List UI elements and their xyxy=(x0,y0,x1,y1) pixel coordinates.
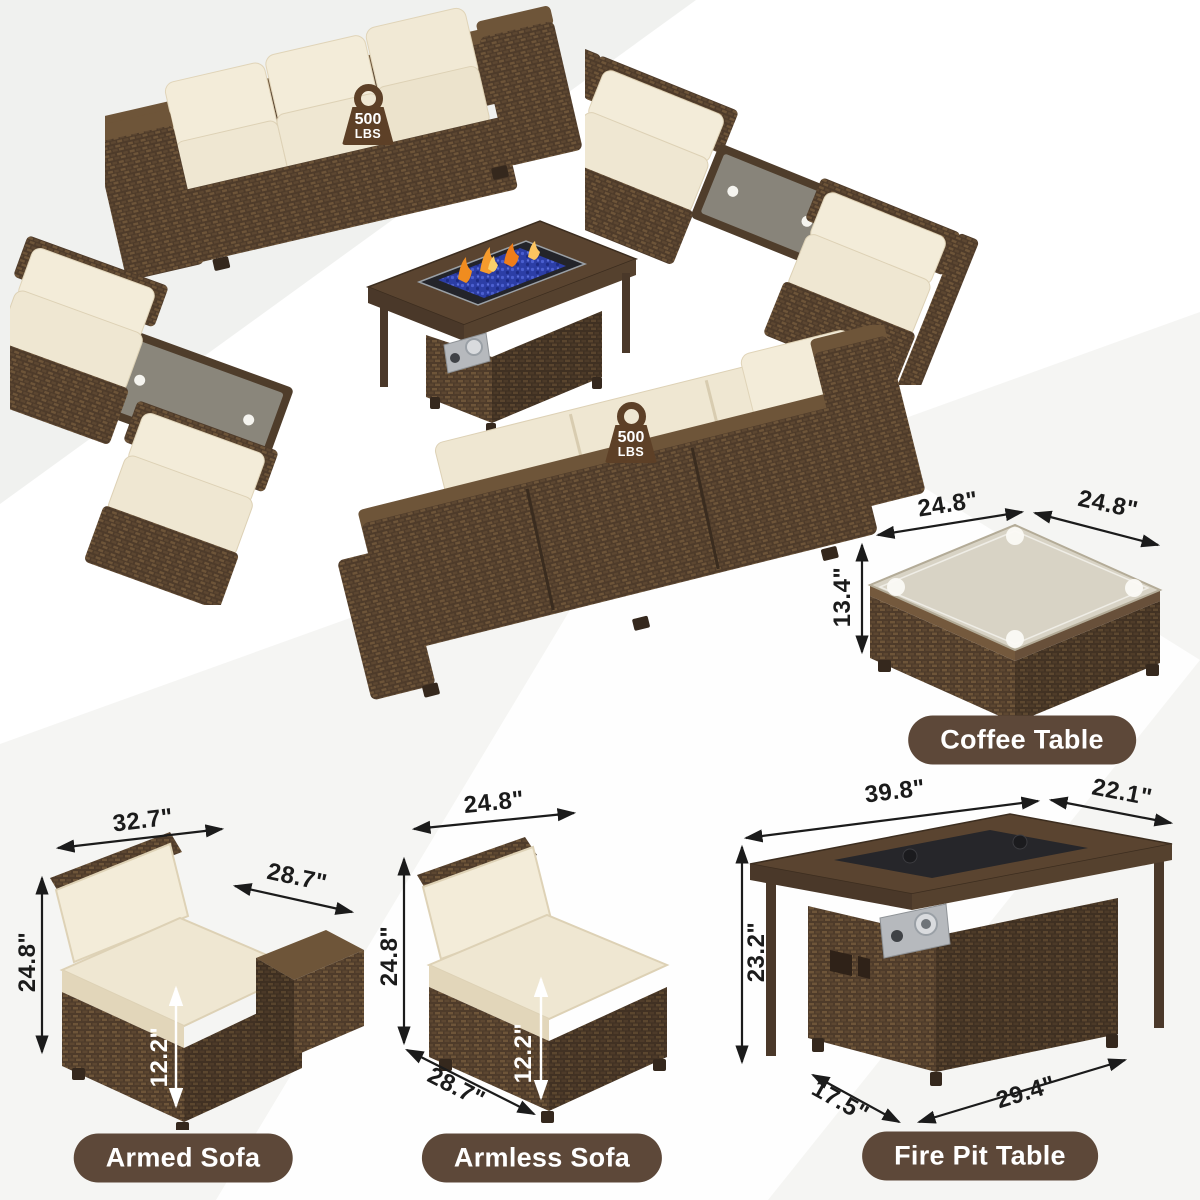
table-leg xyxy=(1154,860,1164,1028)
table-foot xyxy=(812,1038,824,1052)
dim-armed-sofa-height: 24.8" xyxy=(14,932,42,993)
label-pill-armless-sofa: Armless Sofa xyxy=(422,1134,662,1183)
weight-value: 500 xyxy=(605,430,657,446)
diagram-coffee-table xyxy=(850,500,1180,745)
glass-pad xyxy=(1125,579,1143,597)
dim-armless-sofa-seat-height: 12.2" xyxy=(510,1023,538,1084)
tray-hole xyxy=(903,849,917,863)
dim-fire-pit-top-width: 39.8" xyxy=(863,774,927,809)
product-image: 500 LBS 500 LBS xyxy=(0,0,1200,1200)
weight-unit: LBS xyxy=(342,128,394,141)
weight-value: 500 xyxy=(342,112,394,128)
table-foot xyxy=(930,1072,942,1086)
table-foot xyxy=(1106,1034,1118,1048)
sofa-foot xyxy=(821,546,839,562)
glass-pad xyxy=(1006,630,1024,648)
weight-icon xyxy=(354,84,383,113)
weight-capacity-badge: 500 LBS xyxy=(342,84,394,145)
sofa-foot xyxy=(176,1122,189,1130)
table-foot xyxy=(1146,664,1159,676)
vent-hole xyxy=(858,956,870,979)
weight-capacity-badge: 500 LBS xyxy=(605,402,657,463)
dim-armed-sofa-seat-height: 12.2" xyxy=(146,1027,174,1088)
tray-hole xyxy=(1013,835,1027,849)
diagram-fire-pit-table xyxy=(730,810,1190,1140)
control-knob-center xyxy=(921,919,931,929)
glass-pad xyxy=(887,578,905,596)
dim-armless-sofa-width: 24.8" xyxy=(462,786,525,820)
label-pill-armed-sofa: Armed Sofa xyxy=(74,1134,293,1183)
dim-armless-sofa-height: 24.8" xyxy=(376,926,404,987)
diagram-armed-sofa xyxy=(20,830,400,1130)
firepit-base-shade xyxy=(936,898,1118,1072)
weight-icon xyxy=(617,402,646,431)
table-foot xyxy=(878,660,891,672)
label-pill-fire-pit-table: Fire Pit Table xyxy=(862,1132,1098,1181)
glass-pad xyxy=(1006,527,1024,545)
label-pill-coffee-table: Coffee Table xyxy=(908,716,1136,765)
dim-fire-pit-top-depth: 22.1" xyxy=(1090,773,1155,812)
sofa-foot xyxy=(541,1111,554,1123)
sofa-foot xyxy=(72,1068,85,1080)
weight-unit: LBS xyxy=(605,446,657,459)
ignition-button xyxy=(891,930,903,942)
dim-fire-pit-height: 23.2" xyxy=(743,922,771,983)
sofa-foot xyxy=(632,615,650,631)
sofa-foot xyxy=(653,1059,666,1071)
dim-coffee-table-height: 13.4" xyxy=(829,567,857,628)
